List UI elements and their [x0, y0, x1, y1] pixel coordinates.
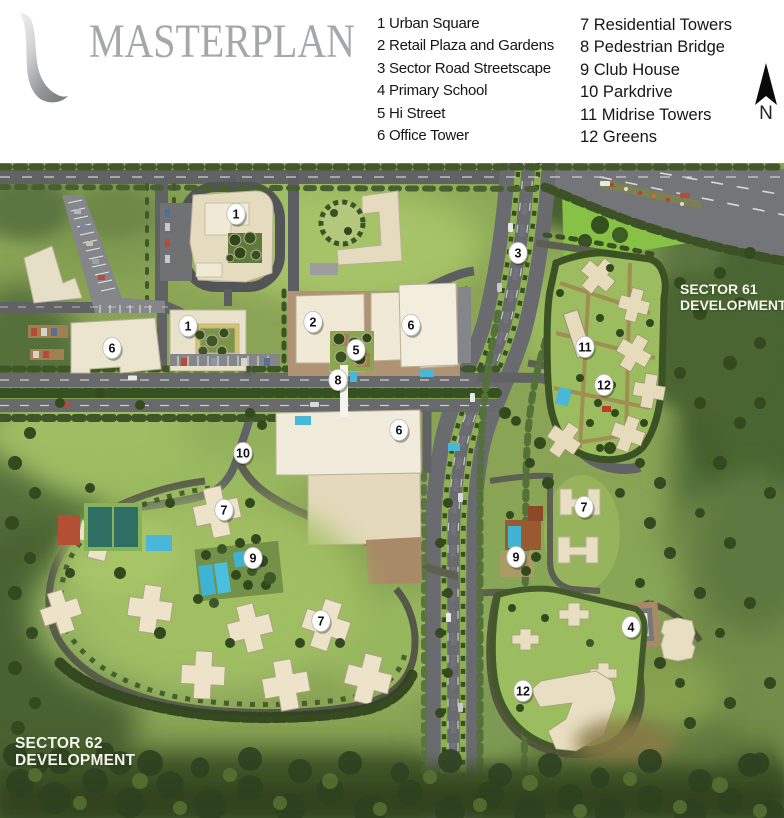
- svg-text:6: 6: [396, 424, 403, 438]
- svg-text:3: 3: [515, 247, 522, 261]
- svg-text:12: 12: [516, 685, 530, 699]
- svg-text:11: 11: [578, 341, 591, 355]
- svg-text:6: 6: [109, 342, 116, 356]
- svg-text:5: 5: [353, 344, 360, 358]
- svg-text:7: 7: [221, 504, 228, 518]
- svg-text:12: 12: [597, 379, 611, 393]
- svg-text:10: 10: [236, 447, 250, 461]
- svg-text:7: 7: [581, 501, 588, 515]
- svg-text:8: 8: [335, 374, 342, 388]
- svg-text:7: 7: [318, 615, 325, 629]
- svg-text:9: 9: [513, 551, 520, 565]
- svg-text:N: N: [759, 103, 773, 124]
- svg-text:1: 1: [233, 208, 240, 222]
- svg-text:1: 1: [185, 320, 192, 334]
- svg-text:6: 6: [408, 319, 415, 333]
- svg-text:2: 2: [310, 316, 317, 330]
- svg-text:4: 4: [628, 621, 635, 635]
- svg-text:9: 9: [250, 552, 257, 566]
